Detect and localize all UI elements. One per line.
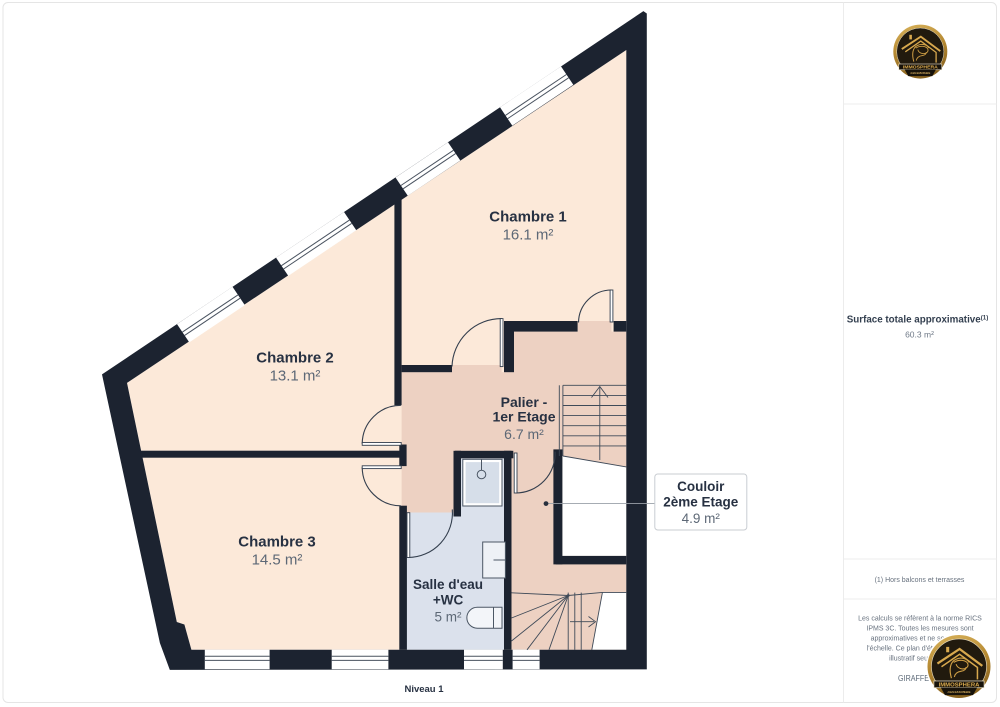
svg-text:4.9 m²: 4.9 m²	[682, 511, 721, 526]
svg-text:Chambre 1: Chambre 1	[489, 209, 567, 226]
svg-text:Les calculs se réfèrent à la n: Les calculs se réfèrent à la norme RICS	[858, 616, 982, 623]
svg-text:60.3 m²: 60.3 m²	[905, 330, 934, 340]
svg-text:6.7 m²: 6.7 m²	[504, 426, 544, 442]
svg-text:14.5 m²: 14.5 m²	[252, 552, 303, 569]
svg-text:Chambre 2: Chambre 2	[256, 350, 334, 367]
svg-text:Couloir: Couloir	[677, 479, 725, 494]
svg-text:Chambre 3: Chambre 3	[238, 534, 316, 551]
svg-text:Niveau 1: Niveau 1	[404, 684, 444, 695]
svg-text:13.1 m²: 13.1 m²	[270, 368, 321, 385]
svg-text:IPMS 3C. Toutes les mesures so: IPMS 3C. Toutes les mesures sont	[866, 626, 973, 633]
svg-text:2ème Etage: 2ème Etage	[663, 495, 739, 510]
svg-text:1er Etage: 1er Etage	[492, 409, 555, 425]
svg-text:5 m²: 5 m²	[435, 610, 463, 625]
svg-text:16.1 m²: 16.1 m²	[503, 227, 554, 244]
svg-text:Salle d'eau: Salle d'eau	[413, 577, 483, 592]
svg-text:+WC: +WC	[433, 593, 464, 608]
svg-text:Surface totale approximative(1: Surface totale approximative(1)	[847, 314, 989, 325]
svg-text:(1) Hors balcons et terrasses: (1) Hors balcons et terrasses	[875, 577, 965, 584]
